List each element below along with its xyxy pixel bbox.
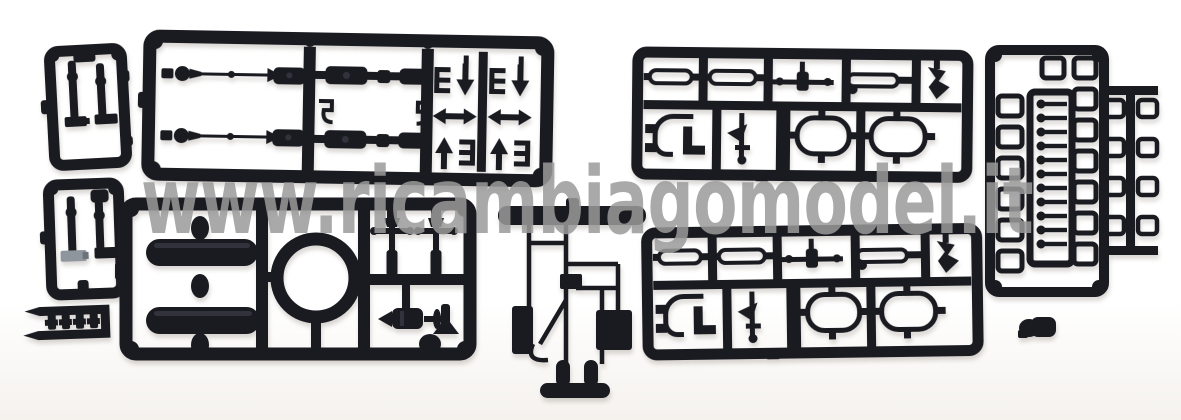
cylinder-chain-1 [313,66,427,86]
sprue-small-frame-top-left [38,46,134,167]
watermark-text: www.ricambiagomodel.it [141,155,1033,247]
sprue-small-frame-mid-left [38,181,124,296]
axle-part-2 [160,127,304,147]
plate-right [596,310,632,350]
base-plate [540,383,610,398]
sprue-strip-bottom-left [22,305,110,341]
photo-canvas: www.ricambiagomodel.it [0,0,1181,420]
tank-part-2 [146,307,260,334]
horn-part [378,284,423,329]
hatchet-part [928,60,950,99]
pulley-part [419,304,459,354]
rung-pins [1037,100,1068,249]
loose-coupler-part [1018,317,1056,338]
axle-detail-part [772,61,834,91]
axle-part-1 [161,65,305,85]
